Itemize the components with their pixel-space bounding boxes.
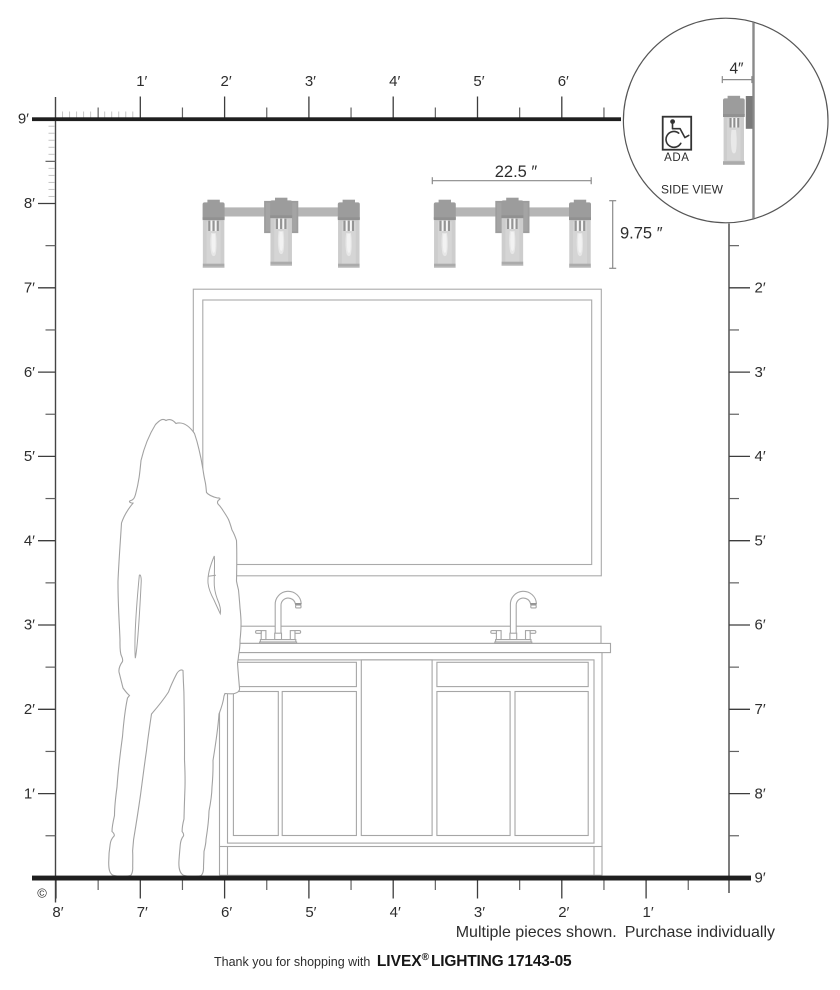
- svg-text:8′: 8′: [755, 785, 766, 802]
- svg-text:8′: 8′: [52, 904, 63, 921]
- svg-text:8′: 8′: [24, 195, 35, 212]
- svg-text:3′: 3′: [755, 364, 766, 381]
- svg-text:©: ©: [37, 886, 47, 901]
- svg-text:9.75 ″: 9.75 ″: [620, 225, 663, 243]
- svg-text:7′: 7′: [24, 280, 35, 297]
- svg-text:Multiple pieces shown. Purchas: Multiple pieces shown. Purchase individu…: [456, 924, 775, 941]
- svg-text:6′: 6′: [221, 904, 232, 921]
- svg-text:2′: 2′: [24, 701, 35, 718]
- svg-text:7′: 7′: [137, 904, 148, 921]
- svg-text:7′: 7′: [755, 701, 766, 718]
- svg-text:5′: 5′: [305, 904, 316, 921]
- svg-text:ADA: ADA: [664, 152, 689, 164]
- svg-text:6′: 6′: [558, 73, 569, 90]
- svg-text:SIDE VIEW: SIDE VIEW: [661, 183, 724, 197]
- svg-text:4′: 4′: [390, 904, 401, 921]
- svg-text:5′: 5′: [473, 73, 484, 90]
- svg-text:2′: 2′: [755, 280, 766, 297]
- svg-text:2′: 2′: [558, 904, 569, 921]
- svg-text:22.5 ″: 22.5 ″: [495, 163, 538, 181]
- svg-text:5′: 5′: [755, 532, 766, 549]
- svg-text:3′: 3′: [24, 617, 35, 634]
- svg-text:4′: 4′: [24, 532, 35, 549]
- svg-text:1′: 1′: [136, 73, 147, 90]
- svg-text:2′: 2′: [221, 73, 232, 90]
- svg-text:6′: 6′: [24, 364, 35, 381]
- svg-text:4″: 4″: [729, 61, 744, 78]
- svg-text:1′: 1′: [643, 904, 654, 921]
- svg-text:1′: 1′: [24, 785, 35, 802]
- svg-text:9′: 9′: [18, 111, 29, 128]
- svg-text:Thank you for shopping with LI: Thank you for shopping with LIVEX®LIGHTI…: [214, 952, 572, 970]
- svg-text:4′: 4′: [389, 73, 400, 90]
- svg-text:9′: 9′: [755, 870, 766, 887]
- svg-text:4′: 4′: [755, 448, 766, 465]
- svg-text:3′: 3′: [474, 904, 485, 921]
- svg-text:6′: 6′: [755, 617, 766, 634]
- svg-text:5′: 5′: [24, 448, 35, 465]
- svg-text:3′: 3′: [305, 73, 316, 90]
